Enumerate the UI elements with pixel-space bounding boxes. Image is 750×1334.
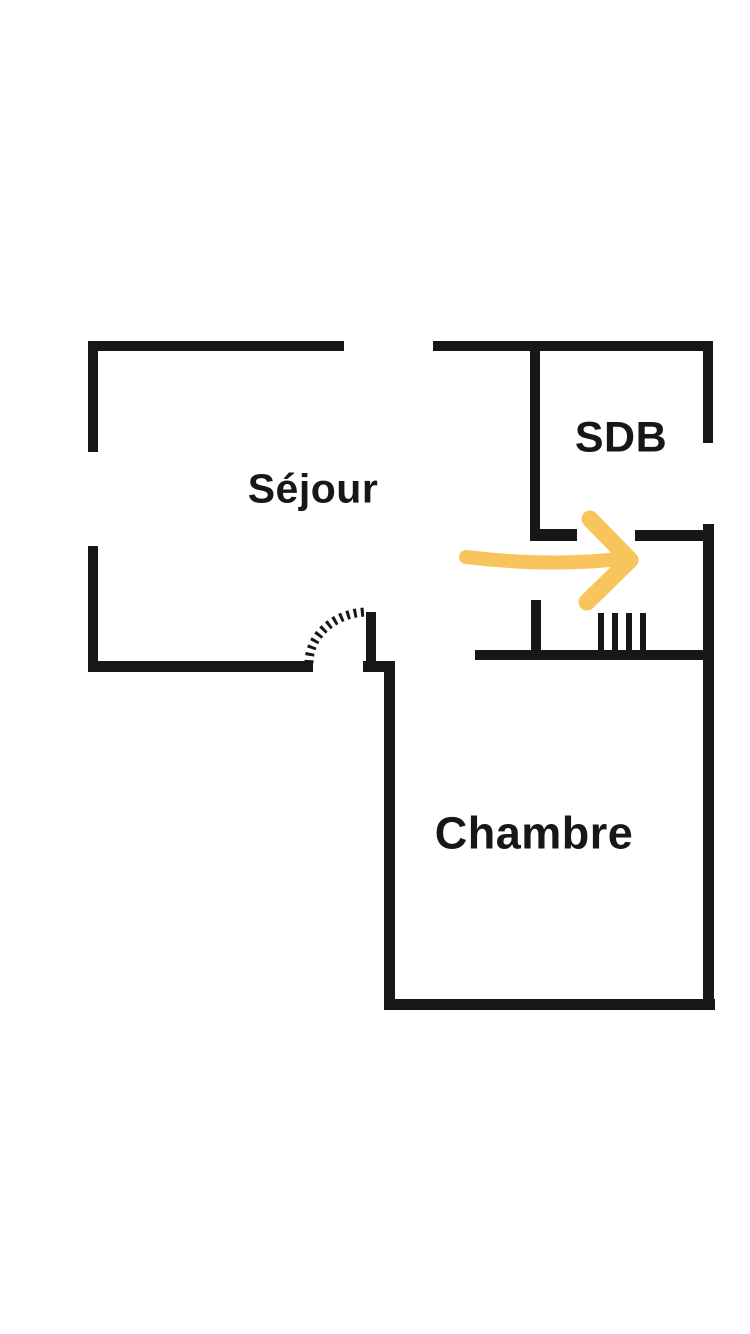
- arrow-right-shaft: [466, 557, 619, 563]
- floor-plan-canvas: Séjour SDB Chambre: [0, 0, 750, 1334]
- plan-symbols-layer: [0, 0, 750, 1334]
- door-swing-arc-icon: [309, 612, 368, 663]
- room-label-sdb: SDB: [575, 417, 667, 460]
- room-label-chambre: Chambre: [435, 811, 634, 856]
- room-label-sejour: Séjour: [248, 469, 379, 510]
